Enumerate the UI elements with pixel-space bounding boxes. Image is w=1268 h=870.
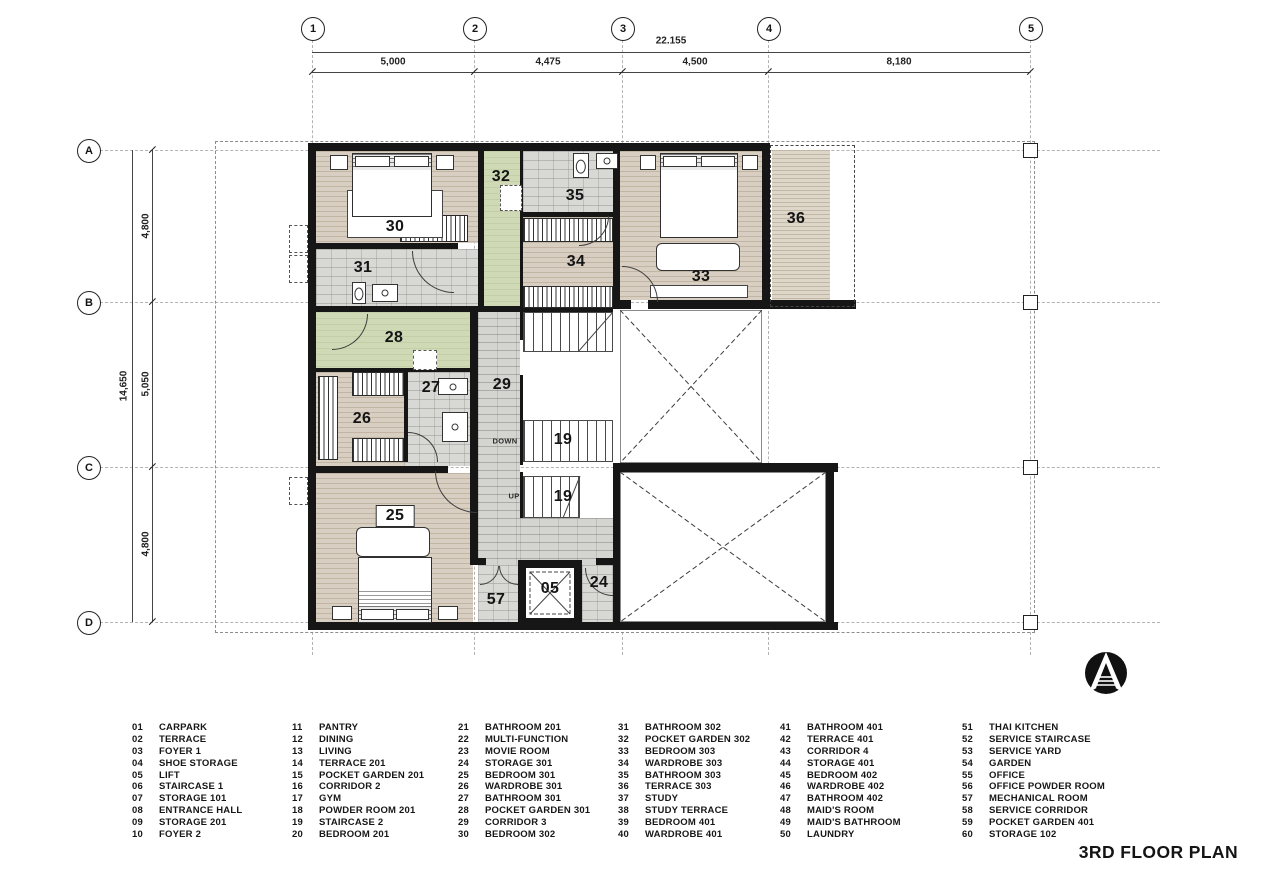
bed-bedroom-301	[358, 557, 432, 623]
legend-entry-number: 43	[780, 746, 807, 757]
legend-entry-number: 41	[780, 722, 807, 733]
dimension-line-top-segments	[312, 72, 1030, 73]
legend-entry-16: 16CORRIDOR 2	[292, 781, 452, 793]
legend-entry-number: 55	[962, 770, 989, 781]
toilet-bathroom-302	[352, 282, 366, 304]
legend-entry-number: 12	[292, 734, 319, 745]
legend-entry-14: 14TERRACE 201	[292, 757, 452, 769]
legend-entry-name: STUDY	[645, 793, 678, 804]
wall	[470, 558, 486, 565]
legend-entry-number: 35	[618, 770, 645, 781]
legend-entry-number: 50	[780, 829, 807, 840]
legend-entry-26: 26WARDROBE 301	[458, 781, 613, 793]
legend-entry-number: 60	[962, 829, 989, 840]
legend-entry-38: 38STUDY TERRACE	[618, 805, 773, 817]
dim-seg-bc: 5,050	[141, 371, 152, 396]
legend-entry-name: MOVIE ROOM	[485, 746, 550, 757]
column	[1023, 295, 1038, 310]
legend-entry-31: 31BATHROOM 302	[618, 722, 773, 734]
legend-entry-23: 23MOVIE ROOM	[458, 746, 613, 758]
legend-entry-49: 49MAID'S BATHROOM	[780, 816, 940, 828]
column	[1023, 615, 1038, 630]
closet-wardrobe-301-bottom	[352, 438, 404, 462]
legend-entry-number: 54	[962, 758, 989, 769]
legend-entry-name: LIVING	[319, 746, 352, 757]
legend-entry-number: 13	[292, 746, 319, 757]
wall	[308, 143, 770, 151]
room-label-35: 35	[566, 187, 585, 205]
legend-entry-name: BEDROOM 201	[319, 829, 389, 840]
legend-entry-56: 56OFFICE POWDER ROOM	[962, 781, 1127, 793]
terrace-railing	[770, 145, 855, 307]
room-label-32: 32	[492, 168, 511, 186]
legend-entry-41: 41BATHROOM 401	[780, 722, 940, 734]
legend-entry-19: 19STAIRCASE 2	[292, 816, 452, 828]
legend-entry-number: 30	[458, 829, 485, 840]
room-label-27: 27	[422, 379, 441, 397]
legend-entry-name: POCKET GARDEN 401	[989, 817, 1094, 828]
legend-entry-name: POCKET GARDEN 301	[485, 805, 590, 816]
stair-note-down: DOWN	[493, 437, 518, 446]
legend-entry-60: 60STORAGE 102	[962, 828, 1127, 840]
nightstand	[436, 155, 454, 170]
dimension-line-left-segments	[152, 150, 153, 622]
legend-entry-number: 28	[458, 805, 485, 816]
legend-entry-number: 38	[618, 805, 645, 816]
legend-entry-name: BEDROOM 303	[645, 746, 715, 757]
legend-entry-name: STORAGE 401	[807, 758, 875, 769]
dim-seg-2: 4,475	[535, 57, 560, 68]
legend-entry-53: 53SERVICE YARD	[962, 746, 1127, 758]
legend-entry-number: 48	[780, 805, 807, 816]
legend-entry-09: 09STORAGE 201	[132, 816, 282, 828]
legend-entry-33: 33BEDROOM 303	[618, 746, 773, 758]
legend-entry-name: BATHROOM 402	[807, 793, 883, 804]
legend-entry-number: 32	[618, 734, 645, 745]
room-label-36: 36	[787, 210, 806, 228]
wall	[762, 143, 770, 308]
wall	[478, 143, 484, 310]
window-symbol	[289, 255, 308, 283]
dim-seg-3: 4,500	[682, 57, 707, 68]
legend-entry-number: 49	[780, 817, 807, 828]
legend-entry-name: TERRACE 201	[319, 758, 386, 769]
legend-entry-number: 44	[780, 758, 807, 769]
legend-entry-40: 40WARDROBE 401	[618, 828, 773, 840]
grid-bubble-D: D	[77, 611, 101, 635]
wall	[308, 306, 520, 312]
legend-entry-28: 28POCKET GARDEN 301	[458, 805, 613, 817]
legend-entry-name: LIFT	[159, 770, 180, 781]
legend-entry-number: 17	[292, 793, 319, 804]
legend-entry-number: 39	[618, 817, 645, 828]
room-label-33: 33	[692, 268, 711, 286]
closet-wardrobe-303-bottom	[523, 286, 613, 308]
legend-entry-58: 58SERVICE CORRIDOR	[962, 805, 1127, 817]
legend-entry-name: DINING	[319, 734, 353, 745]
nightstand	[332, 606, 352, 620]
legend-entry-name: BEDROOM 302	[485, 829, 555, 840]
grid-bubble-4: 4	[757, 17, 781, 41]
legend-entry-34: 34WARDROBE 303	[618, 757, 773, 769]
legend-entry-number: 37	[618, 793, 645, 804]
dim-overall-height: 14,650	[119, 371, 130, 402]
legend-entry-number: 04	[132, 758, 159, 769]
legend-entry-number: 52	[962, 734, 989, 745]
planter-symbol	[413, 350, 437, 370]
legend-entry-name: TERRACE 303	[645, 781, 712, 792]
legend-entry-number: 15	[292, 770, 319, 781]
wall	[316, 243, 458, 249]
legend-entry-name: WARDROBE 401	[645, 829, 722, 840]
legend-entry-37: 37STUDY	[618, 793, 773, 805]
legend-entry-number: 21	[458, 722, 485, 733]
legend-entry-name: BEDROOM 301	[485, 770, 555, 781]
legend-entry-name: WARDROBE 301	[485, 781, 562, 792]
dim-seg-4: 8,180	[886, 57, 911, 68]
legend-entry-42: 42TERRACE 401	[780, 734, 940, 746]
legend-entry-number: 59	[962, 817, 989, 828]
legend-entry-15: 15POCKET GARDEN 201	[292, 769, 452, 781]
legend-entry-number: 34	[618, 758, 645, 769]
wall	[826, 472, 834, 630]
legend-entry-number: 53	[962, 746, 989, 757]
legend-entry-02: 02TERRACE	[132, 734, 282, 746]
nightstand	[438, 606, 458, 620]
legend-entry-20: 20BEDROOM 201	[292, 828, 452, 840]
legend-entry-name: ENTRANCE HALL	[159, 805, 242, 816]
legend-entry-27: 27BATHROOM 301	[458, 793, 613, 805]
nightstand	[330, 155, 348, 170]
legend-entry-11: 11PANTRY	[292, 722, 452, 734]
wall	[308, 466, 448, 473]
window-symbol	[289, 477, 308, 505]
legend-entry-18: 18POWDER ROOM 201	[292, 805, 452, 817]
grid-bubble-5: 5	[1019, 17, 1043, 41]
column	[1023, 460, 1038, 475]
void-x-upper	[620, 310, 762, 463]
legend-entry-number: 19	[292, 817, 319, 828]
legend-entry-name: STORAGE 102	[989, 829, 1057, 840]
legend-entry-number: 58	[962, 805, 989, 816]
legend-entry-number: 18	[292, 805, 319, 816]
legend-entry-name: MAID'S ROOM	[807, 805, 874, 816]
wall	[470, 310, 478, 565]
legend-entry-24: 24STORAGE 301	[458, 757, 613, 769]
legend-entry-13: 13LIVING	[292, 746, 452, 758]
column	[1023, 143, 1038, 158]
legend-entry-name: FOYER 2	[159, 829, 201, 840]
legend-entry-name: OFFICE POWDER ROOM	[989, 781, 1105, 792]
legend-entry-number: 08	[132, 805, 159, 816]
room-label-30: 30	[386, 218, 405, 236]
window-symbol	[289, 225, 308, 253]
legend-entry-name: SERVICE YARD	[989, 746, 1061, 757]
grid-bubble-1: 1	[301, 17, 325, 41]
legend-entry-name: BATHROOM 301	[485, 793, 561, 804]
bed-bedroom-303	[660, 153, 738, 238]
grid-bubble-2: 2	[463, 17, 487, 41]
legend-entry-number: 01	[132, 722, 159, 733]
wall	[613, 463, 620, 630]
room-label-29: 29	[493, 376, 512, 394]
legend-entry-01: 01CARPARK	[132, 722, 282, 734]
legend-entry-name: BATHROOM 401	[807, 722, 883, 733]
dim-seg-cd: 4,800	[141, 531, 152, 556]
closet-wardrobe-301-left	[318, 376, 338, 460]
bed-bedroom-302	[352, 153, 432, 217]
legend-entry-05: 05LIFT	[132, 769, 282, 781]
legend-entry-number: 57	[962, 793, 989, 804]
dimension-line-overall-width	[312, 52, 1030, 53]
legend-column-6: 51THAI KITCHEN52SERVICE STAIRCASE53SERVI…	[962, 722, 1127, 840]
legend-entry-name: WARDROBE 402	[807, 781, 884, 792]
legend-entry-name: MAID'S BATHROOM	[807, 817, 901, 828]
legend-entry-number: 47	[780, 793, 807, 804]
legend-entry-45: 45BEDROOM 402	[780, 769, 940, 781]
legend-entry-name: BATHROOM 303	[645, 770, 721, 781]
legend-entry-12: 12DINING	[292, 734, 452, 746]
legend-entry-name: BATHROOM 201	[485, 722, 561, 733]
legend-entry-number: 20	[292, 829, 319, 840]
legend-entry-number: 07	[132, 793, 159, 804]
legend-entry-number: 05	[132, 770, 159, 781]
legend-entry-name: STUDY TERRACE	[645, 805, 728, 816]
legend-entry-name: BEDROOM 401	[645, 817, 715, 828]
legend-entry-number: 27	[458, 793, 485, 804]
grid-bubble-3: 3	[611, 17, 635, 41]
legend-entry-name: SERVICE STAIRCASE	[989, 734, 1091, 745]
desk-bedroom-301	[356, 527, 430, 557]
dim-overall-width: 22.155	[656, 36, 687, 47]
legend-entry-number: 25	[458, 770, 485, 781]
room-label-05: 05	[541, 580, 560, 598]
shower-bathroom-301	[442, 412, 468, 442]
legend-entry-name: CORRIDOR 4	[807, 746, 869, 757]
legend-entry-name: CARPARK	[159, 722, 207, 733]
room-label-19: 19	[554, 488, 573, 506]
legend-entry-number: 26	[458, 781, 485, 792]
legend-entry-number: 11	[292, 722, 319, 733]
wall	[308, 143, 316, 630]
legend-column-4: 31BATHROOM 30232POCKET GARDEN 30233BEDRO…	[618, 722, 773, 840]
legend-column-3: 21BATHROOM 20122MULTI-FUNCTION23MOVIE RO…	[458, 722, 613, 840]
legend-entry-39: 39BEDROOM 401	[618, 816, 773, 828]
legend-entry-name: POCKET GARDEN 302	[645, 734, 750, 745]
sink-bathroom-302	[372, 284, 398, 302]
stair-note-up: UP	[508, 492, 519, 501]
legend-entry-number: 10	[132, 829, 159, 840]
legend-entry-name: BATHROOM 302	[645, 722, 721, 733]
bench-bedroom-303	[656, 243, 740, 271]
legend-entry-22: 22MULTI-FUNCTION	[458, 734, 613, 746]
legend-entry-36: 36TERRACE 303	[618, 781, 773, 793]
wall	[520, 375, 523, 465]
grid-bubble-C: C	[77, 456, 101, 480]
legend-entry-51: 51THAI KITCHEN	[962, 722, 1127, 734]
legend-entry-06: 06STAIRCASE 1	[132, 781, 282, 793]
room-label-57: 57	[487, 591, 506, 609]
legend-entry-08: 08ENTRANCE HALL	[132, 805, 282, 817]
legend-entry-29: 29CORRIDOR 3	[458, 816, 613, 828]
legend-entry-number: 51	[962, 722, 989, 733]
grid-bubble-A: A	[77, 139, 101, 163]
legend-entry-number: 29	[458, 817, 485, 828]
legend-column-2: 11PANTRY12DINING13LIVING14TERRACE 20115P…	[292, 722, 452, 840]
legend-entry-number: 31	[618, 722, 645, 733]
legend-entry-number: 14	[292, 758, 319, 769]
legend-entry-number: 56	[962, 781, 989, 792]
legend-entry-name: SHOE STORAGE	[159, 758, 238, 769]
legend-entry-03: 03FOYER 1	[132, 746, 282, 758]
legend-entry-number: 23	[458, 746, 485, 757]
legend-entry-name: STORAGE 101	[159, 793, 227, 804]
legend-entry-number: 40	[618, 829, 645, 840]
legend-entry-name: TERRACE	[159, 734, 206, 745]
dim-seg-1: 5,000	[380, 57, 405, 68]
legend-entry-name: STAIRCASE 1	[159, 781, 223, 792]
legend-entry-name: WARDROBE 303	[645, 758, 722, 769]
legend-entry-name: OFFICE	[989, 770, 1025, 781]
legend-entry-name: STAIRCASE 2	[319, 817, 383, 828]
legend-entry-name: TERRACE 401	[807, 734, 874, 745]
legend-entry-number: 16	[292, 781, 319, 792]
legend-entry-name: FOYER 1	[159, 746, 201, 757]
north-arrow-icon	[1083, 650, 1129, 696]
toilet-bathroom-303	[573, 153, 589, 178]
legend-entry-59: 59POCKET GARDEN 401	[962, 816, 1127, 828]
legend-entry-name: MECHANICAL ROOM	[989, 793, 1088, 804]
legend-entry-04: 04SHOE STORAGE	[132, 757, 282, 769]
legend-entry-number: 06	[132, 781, 159, 792]
legend-entry-43: 43CORRIDOR 4	[780, 746, 940, 758]
legend-entry-name: GARDEN	[989, 758, 1031, 769]
room-label-31: 31	[354, 259, 373, 277]
room-label-24: 24	[590, 574, 609, 592]
legend-entry-name: STORAGE 201	[159, 817, 227, 828]
legend-entry-32: 32POCKET GARDEN 302	[618, 734, 773, 746]
void-x-lower	[620, 472, 826, 622]
legend-entry-44: 44STORAGE 401	[780, 757, 940, 769]
legend-entry-name: THAI KITCHEN	[989, 722, 1058, 733]
legend-entry-number: 36	[618, 781, 645, 792]
legend-entry-54: 54GARDEN	[962, 757, 1127, 769]
dim-seg-ab: 4,800	[141, 213, 152, 238]
nightstand	[640, 155, 656, 170]
sink-bathroom-303	[596, 153, 618, 169]
legend-entry-21: 21BATHROOM 201	[458, 722, 613, 734]
legend-entry-name: SERVICE CORRIDOR	[989, 805, 1088, 816]
legend-entry-07: 07STORAGE 101	[132, 793, 282, 805]
legend-entry-52: 52SERVICE STAIRCASE	[962, 734, 1127, 746]
legend-entry-name: POCKET GARDEN 201	[319, 770, 424, 781]
legend-entry-number: 46	[780, 781, 807, 792]
room-label-25: 25	[376, 505, 415, 527]
legend-entry-50: 50LAUNDRY	[780, 828, 940, 840]
legend-entry-name: PANTRY	[319, 722, 358, 733]
legend-entry-17: 17GYM	[292, 793, 452, 805]
legend-column-5: 41BATHROOM 40142TERRACE 40143CORRIDOR 44…	[780, 722, 940, 840]
legend-column-1: 01CARPARK02TERRACE03FOYER 104SHOE STORAG…	[132, 722, 282, 840]
legend-entry-57: 57MECHANICAL ROOM	[962, 793, 1127, 805]
legend-entry-55: 55OFFICE	[962, 769, 1127, 781]
legend-entry-25: 25BEDROOM 301	[458, 769, 613, 781]
legend-entry-35: 35BATHROOM 303	[618, 769, 773, 781]
legend-entry-name: CORRIDOR 3	[485, 817, 547, 828]
plan-title: 3RD FLOOR PLAN	[950, 842, 1238, 863]
legend-entry-number: 03	[132, 746, 159, 757]
legend-entry-30: 30BEDROOM 302	[458, 828, 613, 840]
wall	[613, 463, 838, 472]
legend-entry-name: LAUNDRY	[807, 829, 855, 840]
legend-entry-number: 09	[132, 817, 159, 828]
floor-plan-canvas: 1 2 3 4 5 A B C D 22.155 5,000 4,475 4,5…	[0, 0, 1268, 870]
closet-wardrobe-301-top	[352, 372, 404, 396]
legend-entry-number: 45	[780, 770, 807, 781]
nightstand	[742, 155, 758, 170]
legend-entry-name: GYM	[319, 793, 341, 804]
stair-arrow-upper	[523, 312, 613, 352]
planter-symbol	[500, 185, 522, 211]
room-label-26: 26	[353, 410, 372, 428]
legend-entry-number: 02	[132, 734, 159, 745]
legend-entry-46: 46WARDROBE 402	[780, 781, 940, 793]
legend-entry-number: 42	[780, 734, 807, 745]
legend-entry-name: CORRIDOR 2	[319, 781, 381, 792]
legend-entry-number: 22	[458, 734, 485, 745]
sink-bathroom-301	[438, 378, 468, 395]
room-label-19: 19	[554, 431, 573, 449]
wall	[596, 558, 613, 565]
legend-entry-name: BEDROOM 402	[807, 770, 877, 781]
legend-entry-10: 10FOYER 2	[132, 828, 282, 840]
legend-entry-number: 24	[458, 758, 485, 769]
legend-entry-48: 48MAID'S ROOM	[780, 805, 940, 817]
legend-entry-name: POWDER ROOM 201	[319, 805, 415, 816]
legend-entry-name: STORAGE 301	[485, 758, 553, 769]
grid-bubble-B: B	[77, 291, 101, 315]
legend-entry-name: MULTI-FUNCTION	[485, 734, 568, 745]
dimension-line-overall-height	[132, 150, 133, 622]
room-label-34: 34	[567, 253, 586, 271]
room-label-28: 28	[385, 329, 404, 347]
legend-entry-47: 47BATHROOM 402	[780, 793, 940, 805]
console-bedroom-303	[650, 285, 748, 298]
legend-entry-number: 33	[618, 746, 645, 757]
